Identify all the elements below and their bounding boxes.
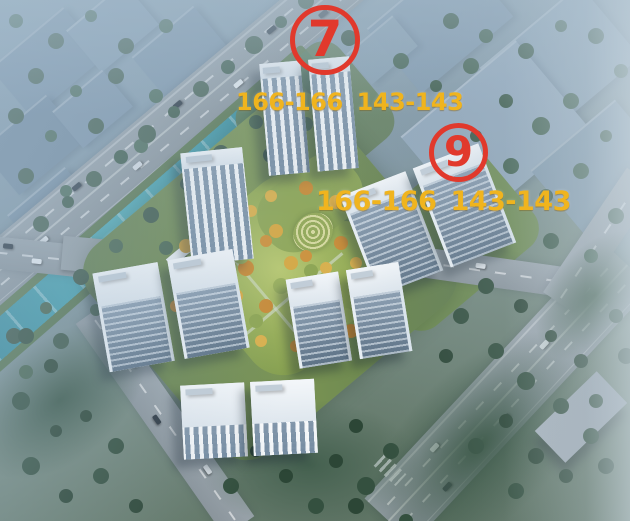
tower-slab bbox=[259, 61, 310, 176]
tower-slab bbox=[346, 262, 412, 359]
tower-pair-center bbox=[286, 261, 417, 368]
aerial-rendering: 7 166-166 143-143 9 166-166 143-143 bbox=[0, 0, 630, 521]
tower-facade bbox=[290, 299, 352, 369]
unit-sizes-label-9: 166-166 143-143 bbox=[316, 186, 571, 217]
car bbox=[3, 243, 13, 249]
tower-slab bbox=[167, 249, 249, 359]
tower-roof bbox=[180, 382, 246, 427]
tower-slab bbox=[180, 382, 248, 459]
unit-sizes-label-7: 166-166 143-143 bbox=[236, 88, 463, 116]
building-9-number: 9 bbox=[444, 131, 473, 173]
car bbox=[266, 25, 277, 35]
tower-pair-south bbox=[180, 378, 324, 459]
size-range: 166-166 bbox=[236, 88, 343, 116]
circled-7-badge: 7 bbox=[290, 5, 360, 75]
tower-block-7 bbox=[259, 56, 358, 175]
car bbox=[31, 258, 41, 264]
building-7-number: 7 bbox=[308, 14, 343, 64]
tower-facade bbox=[182, 163, 254, 265]
tower-slab bbox=[250, 379, 318, 456]
size-range: 143-143 bbox=[450, 186, 570, 217]
tower-slab bbox=[180, 147, 253, 265]
tower-facade bbox=[309, 71, 358, 171]
tower-west-center bbox=[180, 147, 253, 265]
tower-facade bbox=[182, 424, 248, 459]
car bbox=[172, 100, 183, 110]
tower-facade bbox=[98, 296, 174, 372]
tower-facade bbox=[173, 282, 249, 358]
tower-facade bbox=[252, 421, 318, 456]
tower-facade bbox=[350, 290, 412, 360]
size-range: 166-166 bbox=[316, 186, 436, 217]
tower-roof bbox=[250, 379, 316, 424]
size-range: 143-143 bbox=[357, 88, 464, 116]
car bbox=[442, 481, 452, 492]
circled-9-badge: 9 bbox=[429, 123, 488, 182]
